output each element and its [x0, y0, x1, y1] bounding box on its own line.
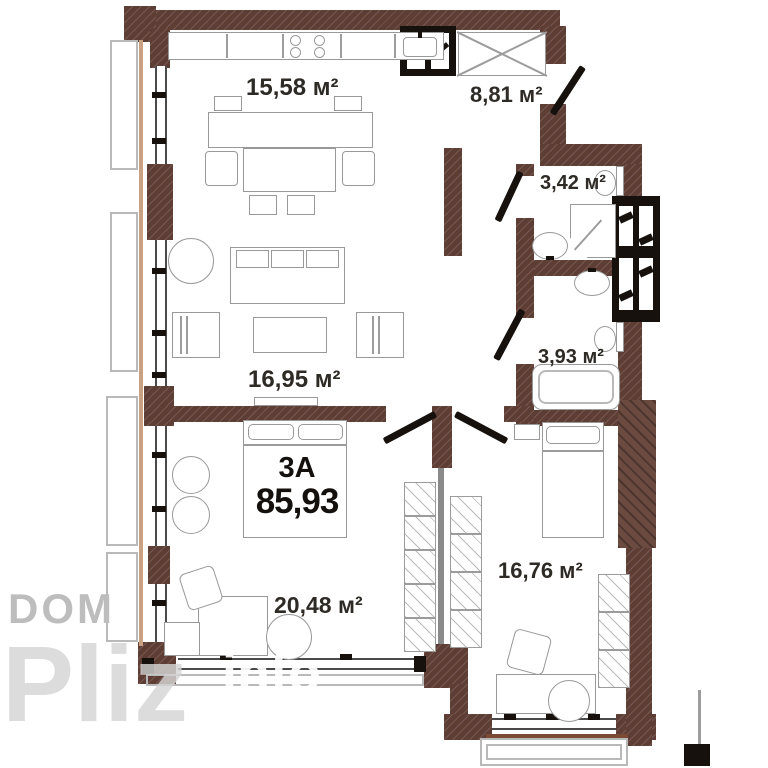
shower — [570, 204, 616, 258]
window-left-1 — [155, 66, 167, 164]
room-label-living: 16,95 м² — [248, 366, 340, 394]
counter-divider — [394, 34, 396, 58]
sink-faucet — [588, 268, 596, 272]
wall-step-lower — [450, 684, 468, 718]
wc-sink — [574, 270, 610, 296]
plant — [172, 496, 210, 534]
apartment-label: 3А 85,93 — [247, 454, 347, 519]
dining-chair-bottom — [287, 195, 315, 215]
wall-left-seg-2 — [147, 164, 173, 240]
wardrobe-cell — [404, 618, 436, 652]
counter-divider — [282, 34, 284, 58]
bathtub-inner — [538, 370, 614, 404]
sofa-cushion — [306, 250, 339, 268]
room-label-bedroom1: 20,48 м² — [274, 592, 363, 619]
stove-burner — [314, 47, 325, 58]
wall-bathroom-top — [540, 144, 642, 166]
wardrobe-cell — [450, 610, 482, 648]
wardrobe-cell — [404, 550, 436, 584]
armchair-line — [378, 316, 380, 354]
bed-blanket-line — [542, 450, 604, 452]
sink-faucet — [418, 30, 422, 38]
toilet-tank — [616, 166, 624, 196]
door-bedroom2 — [454, 411, 508, 444]
dining-chair-left — [205, 151, 238, 186]
tv-console — [254, 397, 318, 406]
kitchen-sink — [403, 37, 437, 57]
sofa-cushion — [236, 250, 269, 268]
wardrobe-cell — [404, 482, 436, 516]
dining-chair-right — [342, 151, 375, 186]
wall-living-bedroom-right — [504, 406, 534, 422]
kitchen-chair — [214, 96, 242, 111]
door-entry — [550, 65, 586, 116]
armchair-line — [180, 316, 182, 354]
sofa-cushion — [271, 250, 304, 268]
apartment-type: 3А — [247, 454, 347, 484]
plant — [168, 238, 214, 284]
plant — [548, 680, 590, 722]
toilet-tank — [616, 322, 624, 352]
window-tick — [504, 714, 516, 720]
vent-shaft-cell — [619, 258, 633, 310]
wall-kitchen-hall-partition — [444, 148, 462, 256]
window-cap-right — [414, 656, 426, 672]
kitchen-island — [208, 112, 373, 148]
dining-table — [243, 148, 336, 192]
door-wc — [493, 308, 525, 361]
plant — [172, 456, 210, 494]
room-label-bedroom2: 16,76 м² — [498, 558, 583, 584]
pillow — [248, 424, 294, 440]
window-tick — [152, 330, 166, 336]
watermark-pliz: Pliz — [2, 630, 188, 738]
wardrobe-cell — [404, 584, 436, 618]
wall-bedroom2-right-thick — [618, 400, 656, 548]
wall-left-seg-4 — [148, 546, 170, 584]
armchair-line — [372, 316, 374, 354]
counter-divider — [226, 34, 228, 58]
stove-burner — [314, 35, 325, 46]
desk-chair — [505, 628, 552, 676]
watermark-info: info — [222, 646, 321, 700]
wall-bathroom-divider — [526, 260, 620, 276]
dining-chair-bottom — [249, 195, 277, 215]
room-label-hallway: 8,81 м² — [470, 82, 543, 108]
door-bathroom — [495, 171, 524, 223]
wall-bedroom2-bottom-left — [444, 714, 492, 740]
bed-blanket-line — [243, 444, 347, 446]
balcony-bedroom2-inner — [486, 744, 622, 760]
window-tick — [152, 452, 166, 458]
wardrobe-cell — [450, 572, 482, 610]
wardrobe-cell — [598, 650, 630, 688]
stove-burner — [290, 35, 301, 46]
wall-bathroom-left — [516, 218, 534, 262]
window-tick — [152, 506, 166, 512]
balcony-2 — [110, 212, 138, 372]
coffee-table — [253, 317, 327, 353]
nightstand — [514, 424, 540, 440]
window-tick — [588, 714, 600, 720]
wall-top — [150, 10, 560, 30]
window-tick — [152, 138, 166, 144]
window-tick — [152, 372, 166, 378]
sink-faucet — [546, 256, 554, 260]
wall-wardrobe-divider — [438, 468, 444, 650]
floorplan-canvas: 15,58 м² 8,81 м² 3,42 м² 3,93 м² 16,95 м… — [0, 0, 768, 768]
balcony-edge-line-right — [698, 690, 701, 744]
stove-burner — [290, 47, 301, 58]
armchair-line — [186, 316, 188, 354]
window-tick — [152, 600, 166, 606]
facade-wood-line — [139, 40, 143, 646]
window-tick — [340, 654, 352, 660]
apartment-total-area: 85,93 — [247, 484, 347, 520]
armchair-right — [356, 312, 404, 358]
window-tick — [152, 92, 166, 98]
wardrobe-cell — [450, 534, 482, 572]
room-label-wc: 3,93 м² — [538, 346, 604, 369]
wardrobe-cell — [598, 612, 630, 650]
wardrobe-cell — [598, 574, 630, 612]
wardrobe-cell — [404, 516, 436, 550]
counter-divider — [340, 34, 342, 58]
pillow — [546, 426, 600, 444]
balcony-3 — [106, 396, 138, 546]
window-left-2 — [155, 240, 167, 386]
wall-left-seg-1 — [150, 28, 170, 68]
room-label-bathroom: 3,42 м² — [540, 172, 606, 195]
window-tick — [152, 268, 166, 274]
room-label-kitchen: 15,58 м² — [246, 74, 338, 102]
window-left-3 — [155, 426, 167, 546]
wardrobe-cell — [450, 496, 482, 534]
door-bedroom1 — [383, 411, 437, 444]
pillow — [298, 424, 343, 440]
balcony-1 — [110, 40, 138, 170]
wall-cap-bottom-right — [684, 744, 710, 766]
